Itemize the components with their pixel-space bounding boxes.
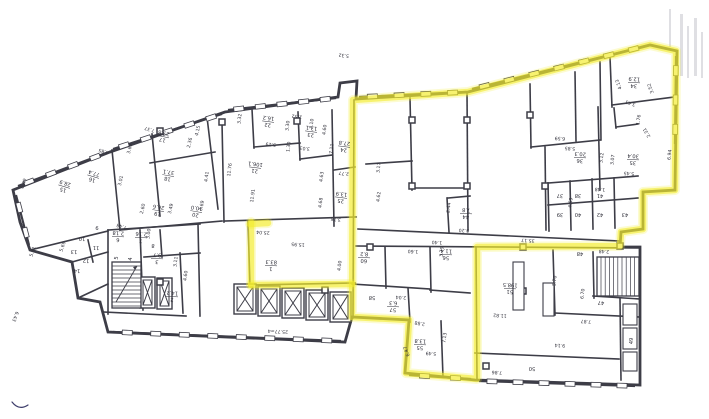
dimension-label: 1.60 [408, 248, 419, 255]
room-label: 608.2 [358, 250, 371, 264]
room-label: 38 [575, 192, 582, 198]
room-label: 1677.4 [85, 168, 101, 184]
room-label: 447.8 [460, 206, 473, 220]
window-tick [208, 333, 218, 338]
dimension-label: 3.52 [646, 82, 655, 94]
dimension-label: 2.04 [396, 294, 407, 301]
dimension-label: 3.07 [609, 154, 616, 165]
room-area: 83.3 [265, 258, 277, 265]
dimension-label: 7.13 [441, 332, 448, 343]
room-area: 16.2 [262, 114, 274, 121]
room-area: 9.7 [153, 251, 162, 257]
dimension-label: 5.32 [338, 51, 349, 58]
dimension-label: 2.88 [414, 319, 425, 327]
room-number: 36 [576, 157, 583, 163]
room-number: 34 [630, 82, 638, 88]
room-label: 3620.3 [574, 150, 587, 164]
dimension-label: 4.62 [375, 191, 382, 202]
dimension-label: 1.40 [432, 239, 443, 246]
dimension-label: 3.11 [172, 256, 179, 267]
room-area: 14.2 [166, 289, 178, 296]
room-area: 2.16 [135, 230, 147, 237]
room-label: 2216.2 [261, 114, 274, 128]
room-label: 1837.1 [161, 167, 175, 182]
dimension-label: 6.49 [20, 178, 29, 190]
inner-wall [332, 110, 334, 226]
room-label: 10 [79, 235, 86, 241]
dimension-label: 1.76 [635, 114, 642, 125]
room-label: 1926.6 [151, 202, 165, 217]
scan-artifact [669, 9, 671, 47]
room-number: 8 [151, 242, 155, 248]
room-label: 11 [93, 244, 100, 250]
window-tick [179, 332, 189, 337]
window-tick [90, 153, 101, 161]
room-number: 49 [629, 338, 635, 345]
room-label: 2513.9 [334, 190, 347, 204]
yellow-highlight-path [251, 284, 352, 285]
room-area: 12.9 [628, 75, 640, 82]
room-label: 39 [557, 211, 564, 217]
room-number: 14 [73, 267, 81, 273]
inner-wall [620, 299, 621, 380]
column-marker [464, 183, 470, 189]
window-tick [234, 106, 244, 112]
column-marker [367, 244, 373, 250]
room-number: 5 [114, 256, 120, 260]
dimension-label: 1.48 [595, 186, 606, 193]
room-label: 62.18 [112, 229, 125, 243]
inner-wall [475, 353, 619, 359]
window-tick [298, 99, 308, 105]
inner-wall [180, 253, 183, 313]
dimension-label: 25.77=4 [268, 327, 289, 334]
scan-artifact [701, 32, 703, 78]
dimension-label: 11.91 [249, 189, 257, 203]
room-number: 41 [597, 192, 604, 198]
dimension-label: 9.14 [555, 342, 566, 349]
dimension-label: 5.49 [426, 350, 437, 357]
duct-rect [543, 283, 554, 316]
dimension-label: 11.82 [493, 312, 507, 319]
inner-wall [430, 290, 470, 293]
room-area: 13.8 [414, 337, 426, 344]
room-number: 1 [269, 265, 273, 271]
room-area: 7.8 [462, 206, 471, 212]
window-tick [122, 330, 132, 335]
inner-wall [441, 321, 443, 377]
inner-wall [352, 284, 430, 289]
dimension-label: 6.43 [10, 310, 19, 322]
room-label: 40 [575, 211, 582, 217]
window-tick [565, 381, 575, 386]
inner-wall [112, 150, 120, 230]
room-number: 10 [79, 235, 86, 241]
room-label: 12 [83, 257, 90, 263]
window-tick [539, 381, 549, 386]
window-tick [151, 331, 161, 336]
dimension-label: 2.48 [599, 248, 610, 255]
dimension-label: 3.01 [117, 175, 125, 187]
room-area: 8.2 [360, 250, 369, 256]
room-number: 3 [155, 258, 159, 264]
dimension-label: 7.37 [144, 125, 156, 134]
inner-wall [78, 284, 108, 298]
room-number: 48 [577, 250, 584, 256]
room-label: 1528.9 [57, 178, 72, 194]
dimension-label: 2.31 [642, 126, 652, 138]
room-number: 39 [557, 211, 564, 217]
dimension-label: 4.13 [614, 78, 623, 90]
room-label: 37 [557, 192, 564, 198]
inner-wall [104, 312, 186, 316]
dimension-label: 3.32 [236, 113, 243, 124]
inner-wall [207, 117, 218, 209]
dimension-label: 5.70 [551, 275, 558, 286]
inner-wall [612, 97, 674, 105]
window-tick [46, 170, 57, 178]
dimension-label: 4.00 [336, 260, 343, 271]
window-tick [513, 380, 523, 385]
dimension-label: 7.87 [581, 318, 592, 325]
dimension-label: 4.41 [203, 171, 210, 182]
yellow-highlight-path [250, 223, 268, 224]
dimension-label: 1.30 [285, 141, 292, 152]
dimension-label: 3.79 [438, 246, 445, 257]
inner-wall [610, 57, 612, 107]
window-tick [236, 335, 246, 340]
column-marker [464, 117, 470, 123]
dimension-label: 7.11 [328, 143, 335, 154]
pen-mark [12, 402, 28, 407]
dimension-label: 6.94 [666, 149, 673, 160]
column-marker [542, 183, 548, 189]
inner-wall [592, 179, 593, 229]
dimension-label: 25.04 [256, 229, 270, 236]
inner-wall [222, 122, 224, 222]
dimension-label: 4.69 [567, 197, 574, 208]
column-marker [527, 112, 533, 118]
inner-wall [598, 107, 600, 190]
room-number: 7 [139, 237, 143, 243]
inner-wall [593, 252, 594, 298]
dimension-label: 2.60 [139, 203, 147, 215]
column-marker [409, 183, 415, 189]
window-wall [113, 332, 341, 341]
inner-wall [548, 176, 638, 183]
dimension-label: 3.49 [167, 203, 175, 215]
room-label: 4 [128, 256, 134, 261]
room-number: 50 [529, 365, 536, 371]
inner-wall [410, 98, 412, 190]
window-tick [293, 337, 303, 342]
room-label: 5513.8 [414, 337, 427, 351]
room-label: 183.3 [265, 258, 278, 272]
column-marker [219, 119, 225, 125]
room-number: 42 [597, 211, 604, 217]
room-area: 2.18 [112, 229, 124, 236]
column-marker [409, 117, 415, 123]
dimension-label: 2.77 [338, 169, 349, 176]
inner-wall [575, 72, 576, 141]
window-tick [22, 227, 29, 238]
room-label: 42 [597, 211, 604, 217]
room-number: 57 [389, 306, 396, 312]
labels-layer: 1528.91677.41723.81837.11926.62010.02110… [10, 51, 673, 375]
window-tick [206, 114, 217, 121]
room-number: 44 [462, 213, 470, 219]
room-number: 43 [622, 211, 629, 217]
column-marker [483, 363, 489, 369]
room-label: 3412.9 [628, 75, 641, 89]
scanned-floor-plan-page: 1528.91677.41723.81837.11926.62010.02110… [0, 0, 709, 419]
window-tick [591, 382, 601, 387]
dimension-label: 7.86 [492, 369, 503, 376]
room-label: 49 [629, 338, 635, 345]
room-label: 72.16 [135, 230, 148, 244]
room-label: 43 [622, 211, 629, 217]
inner-wall [198, 224, 200, 316]
window-tick [277, 101, 287, 107]
window-tick [322, 338, 332, 343]
room-label: 8 [151, 242, 155, 248]
dimension-label: 4.63 [318, 171, 325, 182]
room-area: 37.1 [163, 168, 175, 176]
room-label: 58 [369, 294, 376, 300]
room-label: 48 [577, 250, 584, 256]
room-label: 5 [114, 256, 120, 260]
dimension-label: 2.44 [445, 202, 452, 213]
inner-wall [600, 62, 601, 140]
window-tick [255, 104, 265, 110]
dimension-label: 4.68 [317, 197, 324, 208]
dimension-label: 2.36 [186, 137, 194, 149]
room-number: 4 [128, 256, 134, 261]
floor-plan-svg: 1528.91677.41723.81837.11926.62010.02110… [0, 0, 709, 419]
dimension-label: 35.17 [521, 237, 535, 244]
inner-wall [150, 152, 215, 163]
column-marker [157, 279, 163, 285]
inner-wall [614, 108, 616, 128]
inner-wall [144, 253, 200, 257]
inner-wall [548, 183, 549, 231]
inner-wall [430, 247, 431, 292]
dimension-label: 3.30 [284, 120, 291, 131]
dimension-label: 6.70 [579, 288, 586, 299]
room-number: 6 [116, 236, 120, 242]
dimension-label: 6.59 [555, 135, 566, 142]
window-tick [184, 121, 195, 128]
inner-wall [385, 247, 386, 288]
window-tick [487, 379, 497, 384]
room-number: 47 [598, 299, 605, 305]
inner-wall [366, 161, 412, 164]
room-label: 39.7 [151, 251, 164, 265]
dimension-label: 11.76 [226, 163, 234, 177]
room-number: 13 [71, 248, 78, 254]
inner-wall [614, 178, 615, 228]
room-number: 51 [506, 288, 513, 294]
room-area: 13.9 [335, 190, 347, 197]
room-label: 47 [598, 299, 605, 305]
inner-wall [616, 124, 638, 127]
room-area: 198.5 [503, 281, 518, 288]
duct-rect [623, 304, 637, 325]
room-area: 6.3 [389, 299, 398, 305]
scan-artifact [687, 26, 689, 78]
dimension-label: 4.60 [321, 124, 328, 135]
room-area: 106.1 [248, 160, 263, 168]
window-tick [140, 135, 151, 142]
window-tick [68, 161, 79, 169]
dimension-label: 3.00 [145, 228, 152, 239]
dimension-label: 3.10 [308, 118, 315, 129]
dimension-label: 5.45 [624, 170, 635, 177]
dimension-label: 2.52 [291, 112, 302, 119]
room-number: 40 [575, 211, 582, 217]
dimension-label: 3.69 [198, 200, 206, 212]
window-tick [320, 96, 330, 102]
room-number: 2 [170, 296, 174, 302]
room-number: 58 [369, 294, 376, 300]
dimension-label: 3.03 [299, 144, 310, 151]
room-area: 20.3 [574, 150, 586, 157]
dimension-label: 4.60 [182, 270, 189, 281]
room-label: 9 [95, 224, 99, 230]
room-number: 37 [557, 192, 564, 198]
dimension-label: 5.85 [565, 145, 576, 152]
room-number: 9 [95, 224, 99, 230]
dimension-label: 3.43 [625, 98, 637, 107]
room-number: 38 [575, 192, 582, 198]
room-area: 77.4 [87, 168, 100, 177]
room-number: 60 [360, 257, 367, 263]
dimension-label: 15.95 [291, 241, 305, 248]
room-label: 41 [597, 192, 604, 198]
room-label: 21106.1 [247, 160, 263, 175]
duct-rect [623, 352, 637, 371]
room-label: 3530.4 [626, 152, 639, 166]
window-tick [265, 336, 275, 341]
dimension-label: 3.16 [330, 215, 341, 222]
room-label: 13 [71, 248, 78, 254]
dimension-label: 3.20 [459, 227, 470, 234]
room-label: 576.3 [387, 299, 400, 313]
room-number: 11 [93, 244, 100, 250]
inner-wall [252, 109, 254, 148]
room-number: 35 [629, 159, 636, 165]
room-label: 14 [73, 267, 81, 273]
room-number: 55 [416, 344, 423, 350]
room-area: 30.4 [627, 152, 640, 159]
window-tick [617, 383, 627, 388]
room-area: 26.6 [153, 203, 165, 211]
inner-wall [358, 229, 620, 241]
scan-artifact [694, 18, 697, 76]
inner-wall [300, 155, 332, 159]
room-label: 50 [529, 365, 536, 371]
inner-wall [448, 196, 470, 198]
room-number: 12 [83, 257, 90, 263]
dimension-label: 4.15 [194, 125, 202, 137]
